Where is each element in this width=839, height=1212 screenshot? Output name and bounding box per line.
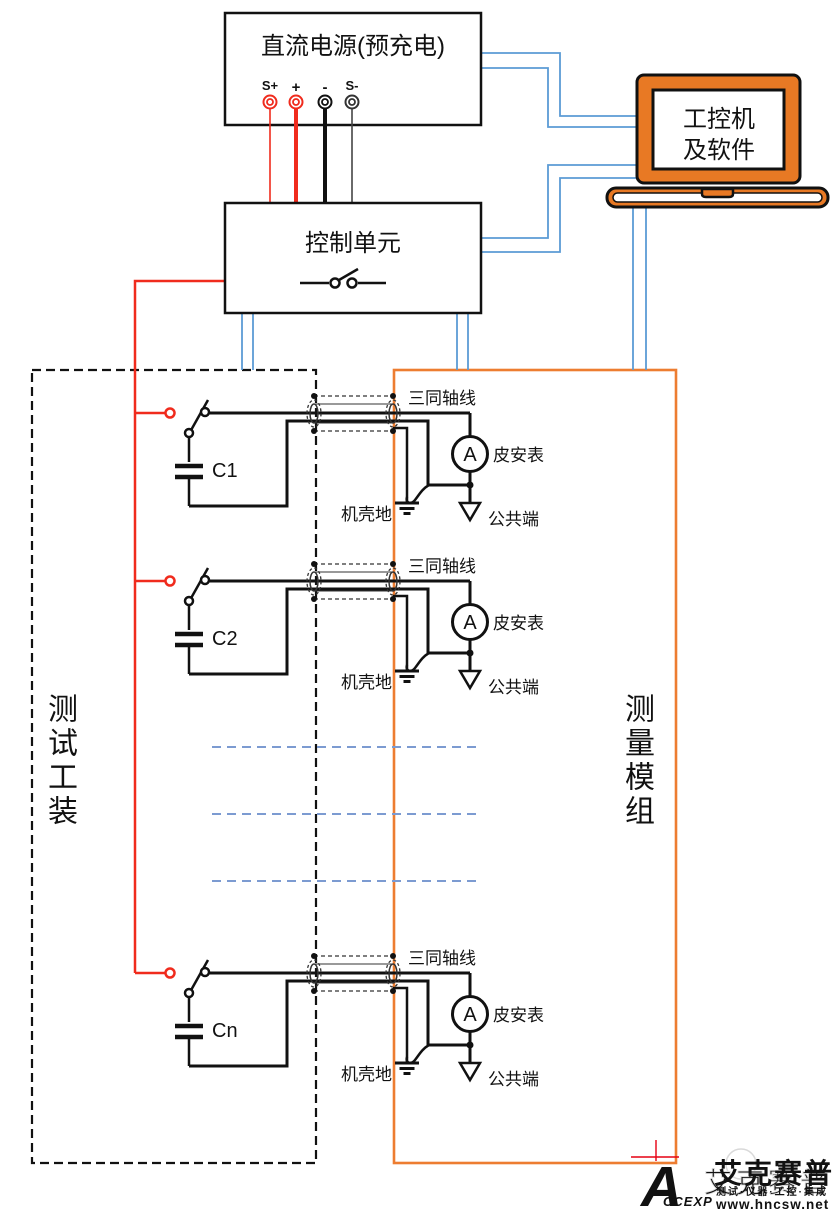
triax-label: 三同轴线 <box>408 557 476 576</box>
wire-psu-to-ipc-2 <box>481 68 637 127</box>
capacitor-label: C1 <box>212 460 238 482</box>
capacitor-label: C2 <box>212 628 238 650</box>
circuit-row-c2 <box>135 561 488 688</box>
common-label: 公共端 <box>488 1070 539 1089</box>
socket-minus-icon <box>319 96 332 109</box>
common-label: 公共端 <box>488 510 539 529</box>
wire-psu-to-ipc-1 <box>481 53 637 116</box>
capacitor-label: Cn <box>212 1020 238 1042</box>
red-feed-bus <box>135 281 225 973</box>
logo-url: www.hncsw.net <box>715 1197 829 1212</box>
control-unit-box: 控制单元 <box>225 203 481 313</box>
logo-brand: 艾克赛普 <box>714 1157 834 1189</box>
terminal-label-plus: + <box>292 79 301 96</box>
common-label: 公共端 <box>488 678 539 697</box>
ammeter-symbol: A <box>463 612 477 634</box>
logo-mark-text: CCEXP <box>663 1194 713 1209</box>
terminal-label-s-plus: S+ <box>262 78 279 93</box>
circuit-row-c1 <box>135 393 488 520</box>
laptop-icon: 工控机 及软件 <box>607 75 828 207</box>
control-unit-title: 控制单元 <box>305 230 401 257</box>
terminal-label-minus: - <box>323 79 328 96</box>
chassis-ground-label: 机壳地 <box>341 1065 392 1084</box>
circuit-row-cn <box>135 953 488 1080</box>
vendor-logo: 艾克赛普 A CCEXP 艾克赛普 测试·仪器·工控·集成 www.hncsw.… <box>631 1140 834 1212</box>
laptop-notch <box>702 189 733 197</box>
ammeter-label: 皮安表 <box>493 446 544 465</box>
triax-label: 三同轴线 <box>408 389 476 408</box>
chassis-ground-label: 机壳地 <box>341 673 392 692</box>
ammeter-label: 皮安表 <box>493 1006 544 1025</box>
repeat-ellipsis-lines <box>212 747 478 881</box>
socket-plus-icon <box>290 96 303 109</box>
socket-s-plus-icon <box>264 96 277 109</box>
ipc-title-line1: 工控机 <box>683 106 755 133</box>
measurement-module-label: 测量模组 <box>621 693 651 829</box>
ammeter-symbol: A <box>463 444 477 466</box>
ammeter-symbol: A <box>463 1004 477 1026</box>
diagram-canvas: C1 C2 Cn 三同轴线 三同轴线 三同轴线 A A A 皮安表 皮安表 皮安… <box>0 0 839 1212</box>
terminal-label-s-minus: S- <box>346 78 359 93</box>
test-fixture-label: 测试工装 <box>44 693 74 829</box>
ammeter-label: 皮安表 <box>493 614 544 633</box>
ipc-title-line2: 及软件 <box>683 137 755 164</box>
triax-label: 三同轴线 <box>408 949 476 968</box>
socket-s-minus-icon <box>346 96 359 109</box>
chassis-ground-label: 机壳地 <box>341 505 392 524</box>
power-supply-title: 直流电源(预充电) <box>261 33 445 60</box>
wiring-diagram: C1 C2 Cn 三同轴线 三同轴线 三同轴线 A A A 皮安表 皮安表 皮安… <box>0 0 839 1212</box>
